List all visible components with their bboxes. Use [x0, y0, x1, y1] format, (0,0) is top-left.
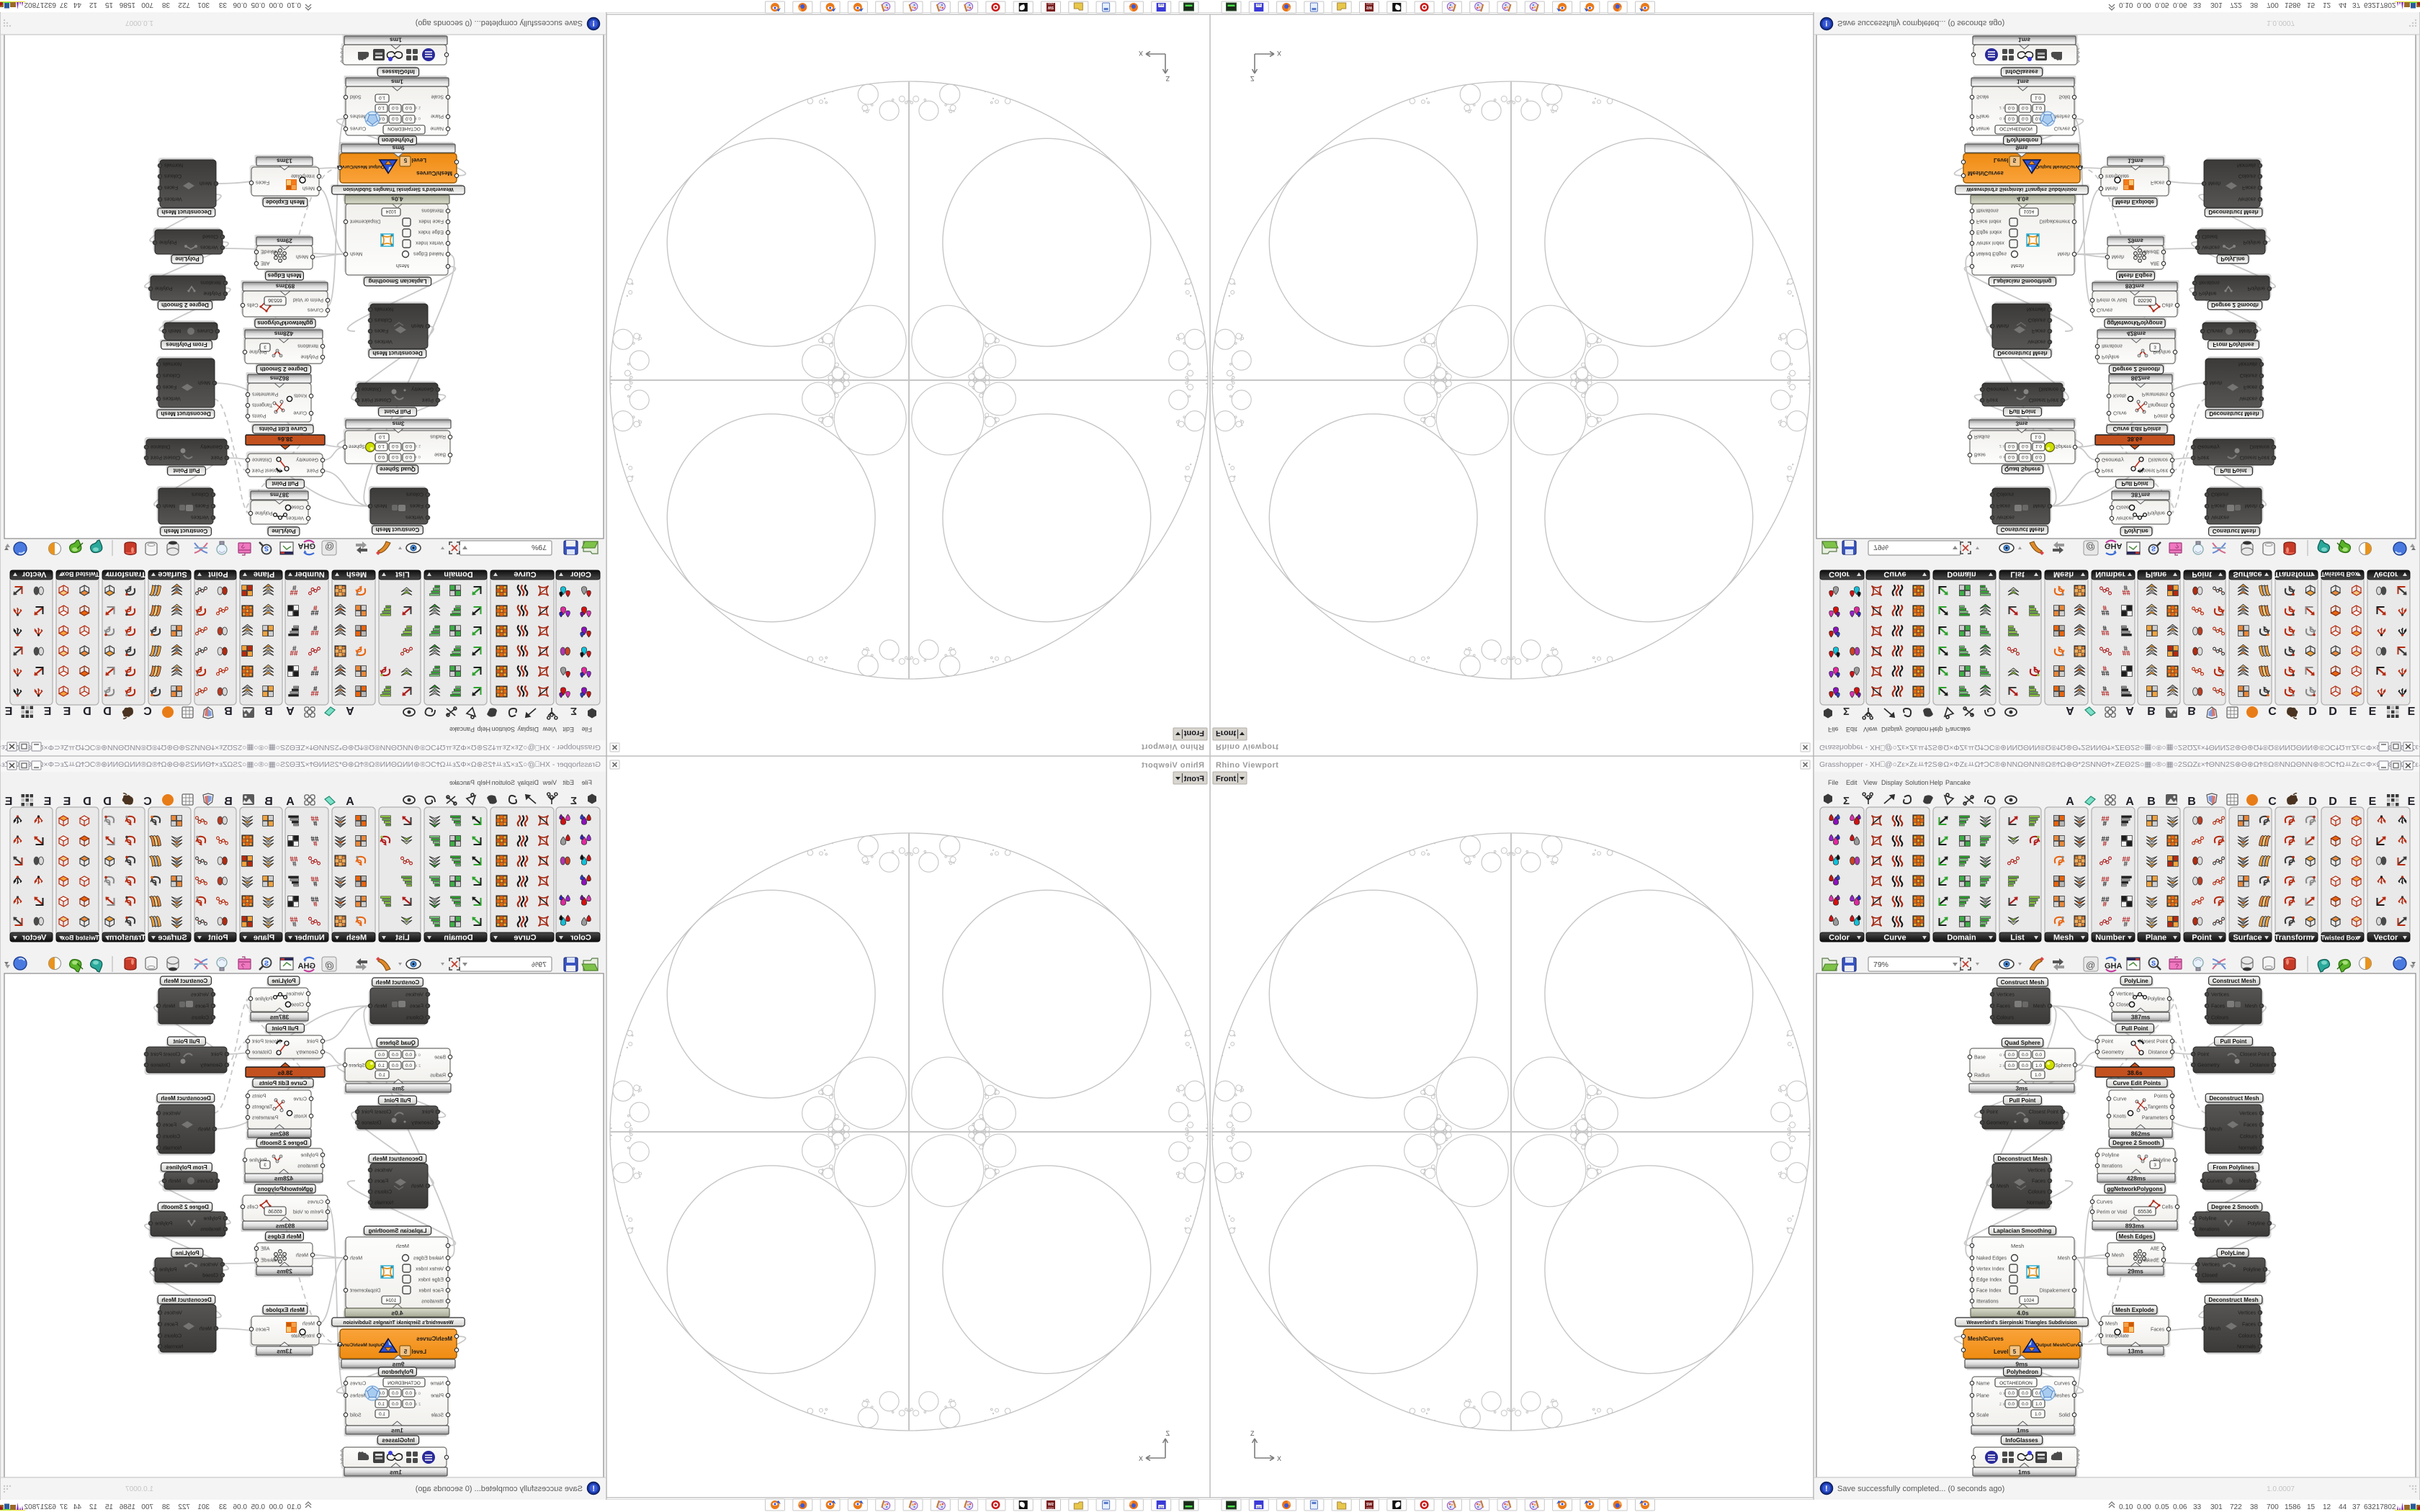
svg-text:428ms: 428ms [2127, 1175, 2146, 1182]
svg-text:E: E [2349, 796, 2357, 808]
svg-text:z x: z x [1999, 1064, 2005, 1068]
svg-text:Parameters: Parameters [2142, 1116, 2169, 1121]
svg-text:37: 37 [2352, 1503, 2361, 1511]
svg-text:Degree 2 Smooth: Degree 2 Smooth [2211, 1204, 2259, 1210]
svg-text:Point: Point [1986, 1110, 1998, 1115]
svg-text:Polyline: Polyline [2199, 1217, 2217, 1222]
svg-text:@: @ [2086, 960, 2095, 971]
svg-text:Front: Front [1216, 775, 1236, 783]
svg-text:0.0: 0.0 [2022, 1402, 2028, 1407]
svg-text:0.0: 0.0 [2008, 1063, 2015, 1068]
svg-text:Vertices: Vertices [2238, 1311, 2256, 1316]
svg-text:Twisted Box: Twisted Box [2321, 935, 2358, 942]
svg-text:38.6s: 38.6s [2127, 1069, 2143, 1076]
svg-text:9ms: 9ms [2015, 1361, 2027, 1368]
svg-text:Mesh: Mesh [2011, 1243, 2024, 1249]
svg-text:1586: 1586 [2285, 1503, 2301, 1511]
svg-text:NakedE: NakedE [2141, 1259, 2159, 1264]
svg-text:Quad Sphere: Quad Sphere [2004, 1040, 2040, 1046]
svg-text:1024: 1024 [2024, 1298, 2035, 1303]
svg-text:Mesh: Mesh [2105, 1322, 2117, 1327]
svg-text:893ms: 893ms [2125, 1223, 2145, 1230]
svg-text:Rhino Viewport: Rhino Viewport [1216, 761, 1278, 770]
svg-text:Curve Edit Points: Curve Edit Points [2113, 1080, 2161, 1086]
svg-text:Polyhedron: Polyhedron [2007, 1369, 2038, 1375]
svg-text:Distance: Distance [2148, 1050, 2168, 1056]
svg-text:0.10: 0.10 [2119, 1503, 2133, 1511]
svg-text:Naked Edges: Naked Edges [1976, 1256, 2007, 1261]
svg-text:Mesh: Mesh [2245, 1004, 2257, 1009]
svg-text:E: E [2408, 796, 2416, 808]
svg-text:Closed: Closed [2202, 1274, 2218, 1279]
svg-text:!: ! [1825, 1485, 1828, 1493]
svg-text:Point: Point [2192, 934, 2212, 942]
svg-text:0.0: 0.0 [2022, 1063, 2028, 1068]
svg-text:Knots: Knots [2113, 1115, 2126, 1120]
svg-text:Z: Z [1250, 1430, 1255, 1437]
svg-text:ggNetworkPolygons: ggNetworkPolygons [2107, 1186, 2163, 1192]
svg-text:Curves: Curves [2054, 1382, 2071, 1387]
svg-text:Vertices: Vertices [2027, 1169, 2045, 1174]
svg-text:Scale: Scale [1976, 1413, 1989, 1418]
svg-text:2020: 2020 [1366, 1506, 1373, 1510]
svg-text:B: B [2147, 796, 2156, 808]
svg-text:Mesh: Mesh [2033, 1004, 2045, 1009]
svg-text:Normals: Normals [2238, 1146, 2258, 1151]
svg-text:Mesh: Mesh [2208, 1327, 2220, 1332]
svg-text:Colours: Colours [2028, 1190, 2046, 1195]
svg-text:Faces: Faces [2151, 1328, 2165, 1333]
svg-text:Point: Point [2102, 1040, 2113, 1045]
svg-text:#: # [2103, 820, 2107, 828]
svg-text:OCTAHEDRON: OCTAHEDRON [1999, 1381, 2033, 1386]
svg-text:Vector: Vector [2374, 934, 2398, 942]
svg-text:64: 64 [1257, 1506, 1261, 1509]
svg-text:Curves: Curves [2207, 1179, 2223, 1184]
svg-text:Construct Mesh: Construct Mesh [2213, 978, 2257, 984]
svg-text:1ms: 1ms [2017, 1427, 2029, 1434]
svg-text:Points: Points [2154, 1094, 2169, 1099]
svg-text:Colours: Colours [1996, 1016, 2015, 1021]
svg-text:Base: Base [1974, 1056, 1986, 1061]
svg-text:Edit: Edit [1846, 779, 1857, 786]
svg-text:0.00: 0.00 [2137, 1503, 2151, 1511]
svg-text:Help: Help [1930, 779, 1943, 786]
svg-text:Mesh: Mesh [1996, 1184, 2009, 1189]
svg-text:Pancake: Pancake [1945, 779, 1971, 786]
svg-text:387ms: 387ms [2131, 1014, 2151, 1021]
svg-text:#: # [2124, 921, 2128, 929]
svg-text:Mesh: Mesh [2239, 1179, 2251, 1184]
svg-text:63217802: 63217802 [2364, 1503, 2396, 1511]
svg-text:Tangents: Tangents [2148, 1105, 2169, 1110]
svg-text:#: # [2103, 840, 2107, 848]
svg-text:Polyline: Polyline [2243, 1268, 2261, 1273]
svg-text:Mesh: Mesh [2112, 1254, 2124, 1259]
svg-text:Face Index: Face Index [1976, 1289, 2002, 1294]
svg-text:65536: 65536 [2138, 1210, 2152, 1215]
svg-text:38: 38 [2250, 1503, 2259, 1511]
svg-text:Faces: Faces [2244, 1123, 2258, 1128]
svg-text:Mesh Edges: Mesh Edges [2119, 1233, 2153, 1240]
svg-text:0.0: 0.0 [2008, 1402, 2015, 1407]
svg-text:1.0: 1.0 [2035, 1402, 2042, 1407]
svg-text:#: # [2103, 901, 2107, 909]
svg-text:79%: 79% [1873, 960, 1888, 969]
svg-text:AllE: AllE [2151, 1247, 2160, 1252]
svg-text:PolyLine: PolyLine [2220, 1250, 2245, 1256]
svg-text:Weaverbird's Sierpinski Triang: Weaverbird's Sierpinski Triangles Subdiv… [1966, 1320, 2076, 1326]
svg-text:B: B [2187, 796, 2196, 808]
svg-text:1.0: 1.0 [2035, 1073, 2041, 1078]
svg-text:Mesh Explode: Mesh Explode [2115, 1307, 2154, 1313]
svg-text:X: X [1277, 1455, 1281, 1462]
svg-text:Distance: Distance [2039, 1121, 2058, 1126]
svg-text:0.06: 0.06 [2173, 1503, 2187, 1511]
svg-text:Level: Level [1994, 1349, 2008, 1355]
svg-text:1.0.0007: 1.0.0007 [2267, 1485, 2295, 1493]
svg-text:Perim or Void: Perim or Void [2097, 1210, 2127, 1215]
svg-text:0.0: 0.0 [2008, 1053, 2015, 1058]
svg-text:List: List [2010, 934, 2025, 942]
svg-text:Deconstruct Mesh: Deconstruct Mesh [2209, 1095, 2259, 1102]
svg-text:0.05: 0.05 [2155, 1503, 2169, 1511]
svg-text:Mesh: Mesh [2210, 1128, 2222, 1133]
svg-text:0.0: 0.0 [2008, 1391, 2015, 1396]
svg-text:Number: Number [2095, 934, 2125, 942]
svg-text:Faces: Faces [2242, 1323, 2257, 1328]
svg-text:#: # [2103, 881, 2107, 888]
svg-text:D: D [2329, 796, 2337, 808]
svg-text:Solid: Solid [2058, 1413, 2070, 1418]
svg-text:Name: Name [1976, 1382, 1990, 1387]
svg-text:12: 12 [2323, 1503, 2331, 1511]
svg-text:301: 301 [2210, 1503, 2223, 1511]
svg-text:Mesh/Curves: Mesh/Curves [1968, 1336, 2004, 1342]
svg-text:Laplacian Smoothing: Laplacian Smoothing [1994, 1228, 2052, 1234]
svg-text:Colours: Colours [2211, 1016, 2229, 1021]
svg-text:o x: o x [1999, 1053, 2005, 1058]
svg-text:Curves: Curves [2097, 1200, 2113, 1205]
svg-text:3: 3 [2154, 1163, 2156, 1168]
svg-text:Solution: Solution [1905, 779, 1929, 786]
svg-text:z x: z x [1999, 1403, 2005, 1407]
svg-text:E: E [2369, 796, 2377, 808]
svg-text:Output Mesh/Curves: Output Mesh/Curves [2035, 1343, 2084, 1348]
svg-text:From Polylines: From Polylines [2213, 1164, 2254, 1171]
svg-text:S: S [2151, 960, 2156, 967]
svg-text:722: 722 [2230, 1503, 2242, 1511]
svg-text:3ms: 3ms [2015, 1085, 2027, 1092]
svg-text:Deconstruct Mesh: Deconstruct Mesh [1997, 1156, 2047, 1162]
svg-text:Color: Color [1829, 934, 1850, 942]
svg-text:Vertices: Vertices [1996, 993, 2015, 998]
svg-text:Grasshopper - XH⎕@○Ζε×ΖεㅛϮ2S⊛Ω: Grasshopper - XH⎕@○Ζε×ΖεㅛϮ2S⊛Ω×ΦΖεㅛΩϮƆC®… [1819, 760, 2420, 769]
svg-text:A: A [2066, 796, 2074, 808]
svg-text:Closest Point: Closest Point [2240, 1053, 2269, 1058]
svg-text:o x: o x [1999, 1392, 2005, 1396]
svg-text:Point: Point [2197, 1053, 2209, 1058]
svg-text:Mesh: Mesh [2058, 1256, 2070, 1261]
svg-text:1.0: 1.0 [2035, 1412, 2041, 1417]
svg-text:Surface: Surface [2233, 934, 2262, 942]
svg-text:Deconstruct Mesh: Deconstruct Mesh [2208, 1297, 2258, 1303]
svg-text:862ms: 862ms [2131, 1130, 2151, 1138]
svg-text:15: 15 [2307, 1503, 2316, 1511]
svg-text:Normals: Normals [2027, 1201, 2046, 1206]
svg-text:Distance: Distance [2250, 1063, 2269, 1068]
svg-text:700: 700 [2267, 1503, 2279, 1511]
svg-text:Faces: Faces [2032, 1179, 2046, 1184]
svg-text:Vertices: Vertices [2116, 992, 2134, 997]
svg-text:5: 5 [2013, 1349, 2017, 1355]
svg-text:Cells: Cells [2161, 1205, 2173, 1210]
svg-text:0.0: 0.0 [2022, 1391, 2028, 1396]
svg-text:Vertices: Vertices [2211, 993, 2229, 998]
svg-text:0.0: 0.0 [2035, 1053, 2042, 1058]
svg-text:Geometry: Geometry [2102, 1050, 2124, 1056]
svg-text:Pull Point: Pull Point [2122, 1025, 2148, 1032]
svg-text:Colours: Colours [2240, 1135, 2258, 1140]
svg-text:44: 44 [2339, 1503, 2347, 1511]
svg-text:Colours: Colours [2238, 1334, 2257, 1339]
svg-text:Domain: Domain [1947, 934, 1976, 942]
svg-text:Display: Display [1881, 779, 1903, 786]
svg-text:Polyline: Polyline [2247, 1222, 2265, 1227]
svg-text:Save successfully completed...: Save successfully completed... (0 second… [1837, 1485, 2004, 1493]
svg-text:Construct Mesh: Construct Mesh [2001, 979, 2045, 986]
svg-text:Σ: Σ [1843, 795, 1850, 807]
svg-text:Curve: Curve [1883, 934, 1906, 942]
svg-text:View: View [1863, 779, 1878, 786]
svg-text:0.0: 0.0 [2022, 1053, 2028, 1058]
svg-text:29ms: 29ms [2128, 1268, 2143, 1275]
svg-text:33: 33 [2193, 1503, 2202, 1511]
svg-text:Plane: Plane [2146, 934, 2166, 942]
svg-text:Plane: Plane [1976, 1394, 1989, 1399]
svg-text:Mesh: Mesh [2053, 934, 2074, 942]
svg-text:Transform: Transform [2275, 934, 2313, 942]
svg-text:Vertices: Vertices [2202, 1263, 2220, 1268]
svg-text:Normals: Normals [2237, 1345, 2257, 1350]
svg-text:Closest Point: Closest Point [2029, 1110, 2058, 1115]
svg-text:Iterations: Iterations [2199, 1228, 2220, 1233]
svg-text:Geometry: Geometry [1986, 1121, 2009, 1126]
svg-text:Faces: Faces [1996, 1004, 2011, 1009]
svg-text:A: A [2125, 796, 2134, 808]
svg-text:Vertices: Vertices [2239, 1112, 2257, 1117]
svg-text:Iterations: Iterations [2102, 1164, 2123, 1169]
svg-text:File: File [1828, 779, 1839, 786]
svg-text:Itterations: Itterations [1976, 1300, 1999, 1305]
svg-text:PolyLine: PolyLine [2124, 978, 2148, 984]
svg-text:#: # [2124, 860, 2128, 868]
svg-text:InfoGlasses: InfoGlasses [2005, 1437, 2038, 1444]
svg-text:Pull Point: Pull Point [2009, 1097, 2036, 1104]
svg-text:Radius: Radius [1974, 1074, 1990, 1079]
svg-text:D: D [2308, 796, 2317, 808]
svg-text:Polyline: Polyline [2102, 1153, 2120, 1158]
svg-text:Degree 2 Smooth: Degree 2 Smooth [2112, 1140, 2160, 1146]
svg-text:Polyline: Polyline [2147, 997, 2165, 1002]
svg-text:13ms: 13ms [2128, 1348, 2143, 1355]
svg-text:4.0s: 4.0s [2017, 1310, 2029, 1317]
svg-text:Sphere: Sphere [2055, 1063, 2071, 1068]
svg-text:Edge Index: Edge Index [1976, 1278, 2002, 1283]
svg-text:Vertex Index: Vertex Index [1976, 1267, 2004, 1272]
svg-text:?: ? [2175, 963, 2179, 970]
svg-text:Pull Point: Pull Point [2220, 1038, 2247, 1045]
svg-text:Curve: Curve [2113, 1097, 2127, 1102]
svg-text:Dispalcement: Dispalcement [2040, 1289, 2070, 1294]
svg-text:Faces: Faces [2211, 1004, 2226, 1009]
svg-text:1ms: 1ms [2018, 1469, 2030, 1476]
svg-text:1.0: 1.0 [2035, 1063, 2042, 1068]
svg-text:Geometry: Geometry [2197, 1063, 2220, 1068]
svg-text:C: C [2268, 796, 2277, 808]
